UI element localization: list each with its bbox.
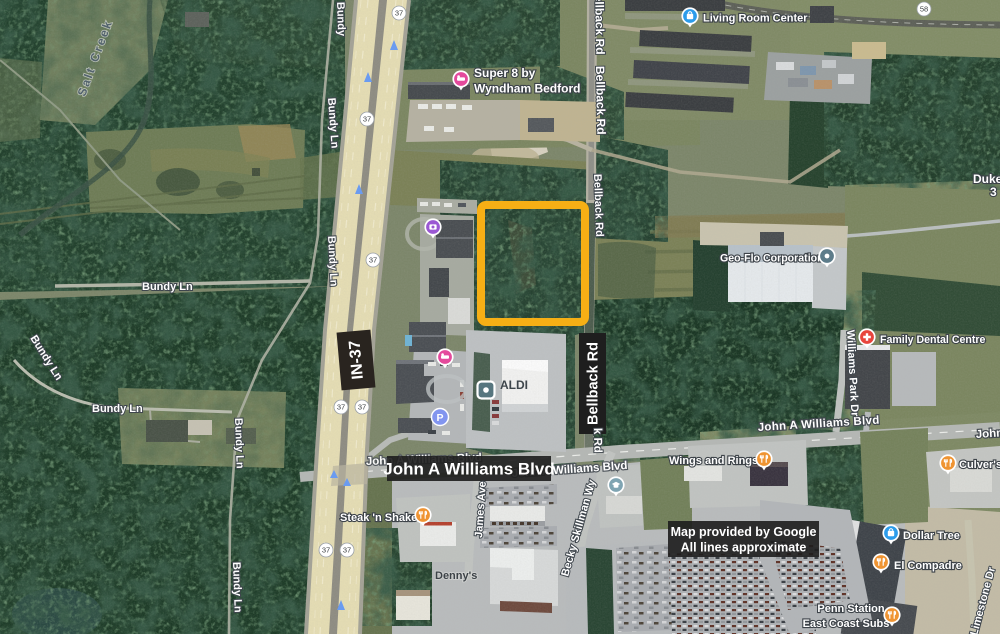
svg-text:Bellback Rd: Bellback Rd <box>593 66 608 135</box>
svg-text:Bundy Ln: Bundy Ln <box>142 281 193 293</box>
svg-text:37: 37 <box>322 546 330 555</box>
svg-text:37: 37 <box>358 403 366 412</box>
svg-text:ALDI: ALDI <box>500 378 528 392</box>
svg-text:East Coast Subs: East Coast Subs <box>803 618 890 630</box>
svg-text:Dollar Tree: Dollar Tree <box>903 530 960 542</box>
svg-text:Culver's: Culver's <box>959 459 1000 471</box>
svg-text:Family Dental Centre: Family Dental Centre <box>880 334 985 346</box>
svg-text:37: 37 <box>369 256 377 265</box>
svg-text:John A Williams Blvd: John A Williams Blvd <box>383 460 554 479</box>
svg-text:John A: John A <box>975 427 1000 441</box>
svg-text:37: 37 <box>395 9 403 18</box>
svg-text:Bundy Ln: Bundy Ln <box>230 562 244 613</box>
svg-text:37: 37 <box>337 403 345 412</box>
svg-text:Bellback Rd: Bellback Rd <box>591 174 605 237</box>
svg-text:58: 58 <box>920 5 928 14</box>
svg-text:Bundy: Bundy <box>334 2 347 37</box>
svg-text:Wyndham Bedford: Wyndham Bedford <box>474 82 580 96</box>
svg-text:Super 8 by: Super 8 by <box>474 66 536 80</box>
svg-text:Duke: Duke <box>973 172 1000 186</box>
svg-text:Bundy Ln: Bundy Ln <box>92 403 143 415</box>
svg-text:All lines approximate: All lines approximate <box>681 541 807 555</box>
svg-text:Living Room Center: Living Room Center <box>703 13 808 25</box>
svg-text:Bundy Ln: Bundy Ln <box>232 418 246 469</box>
svg-text:Penn Station: Penn Station <box>817 603 885 615</box>
svg-text:IN-37: IN-37 <box>347 340 367 381</box>
svg-text:k Rd: k Rd <box>591 428 603 453</box>
svg-text:Map provided by Google: Map provided by Google <box>671 525 817 539</box>
svg-text:Geo-Flo Corporation: Geo-Flo Corporation <box>720 253 824 265</box>
svg-text:Bellback Rd: Bellback Rd <box>592 0 607 55</box>
svg-text:El Compadre: El Compadre <box>894 560 962 572</box>
svg-text:37: 37 <box>363 115 371 124</box>
svg-text:P: P <box>436 412 443 424</box>
svg-text:3: 3 <box>990 185 997 199</box>
svg-text:Bellback Rd: Bellback Rd <box>585 342 601 425</box>
svg-text:Wings and Rings: Wings and Rings <box>669 455 758 467</box>
svg-text:37: 37 <box>343 546 351 555</box>
svg-text:Steak 'n Shake: Steak 'n Shake <box>340 512 417 524</box>
svg-text:Denny's: Denny's <box>435 570 477 582</box>
